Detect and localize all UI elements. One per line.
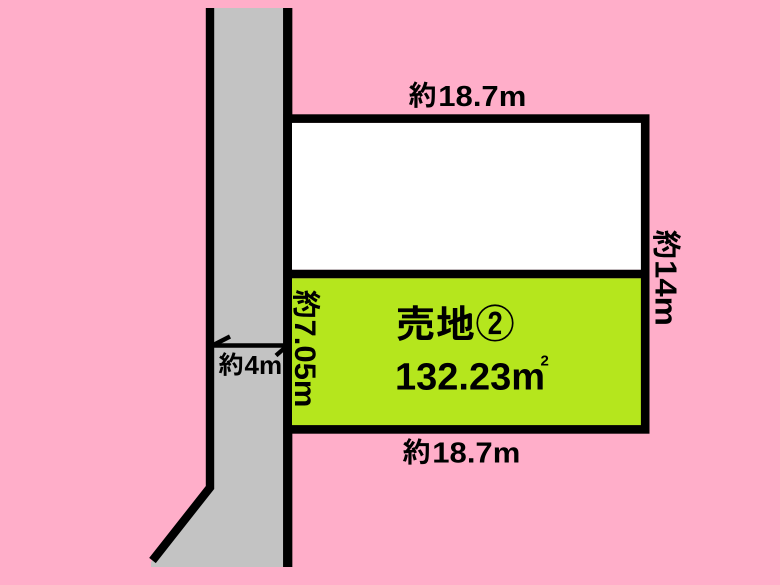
svg-text:18.7m: 18.7m: [438, 81, 526, 113]
svg-text:14m: 14m: [648, 260, 682, 326]
svg-text:2: 2: [541, 353, 549, 370]
svg-text:7.05m: 7.05m: [288, 320, 321, 408]
svg-text:18.7m: 18.7m: [432, 438, 520, 470]
svg-text:4m: 4m: [245, 350, 283, 380]
svg-text:132.23m: 132.23m: [395, 357, 545, 399]
